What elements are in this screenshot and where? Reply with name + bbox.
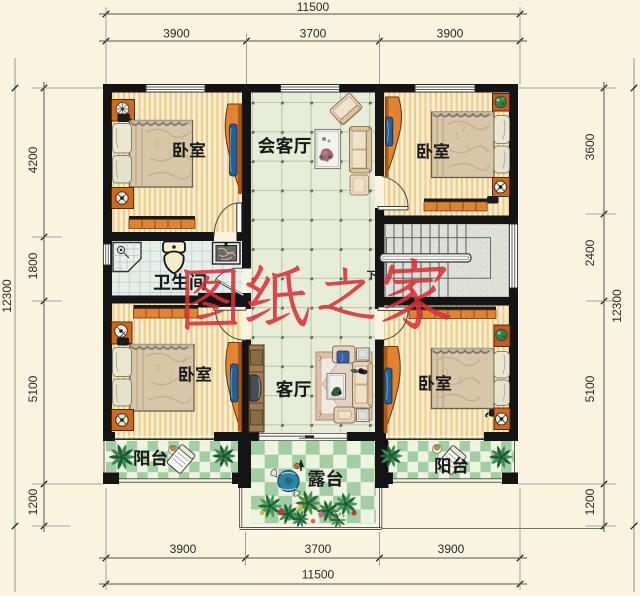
svg-text:2400: 2400 — [583, 239, 597, 266]
svg-text:1800: 1800 — [26, 252, 40, 279]
svg-text:3600: 3600 — [583, 133, 597, 160]
svg-text:3900: 3900 — [438, 542, 465, 556]
svg-text:3900: 3900 — [163, 27, 190, 41]
svg-text:5100: 5100 — [26, 375, 40, 402]
svg-text:12300: 12300 — [0, 279, 14, 313]
svg-text:11500: 11500 — [302, 568, 335, 582]
svg-text:1200: 1200 — [26, 488, 40, 515]
svg-text:5100: 5100 — [583, 375, 597, 402]
svg-text:3900: 3900 — [170, 542, 197, 556]
svg-text:4200: 4200 — [26, 146, 40, 173]
svg-text:3900: 3900 — [437, 27, 464, 41]
svg-text:3700: 3700 — [305, 542, 332, 556]
svg-text:3700: 3700 — [300, 27, 327, 41]
svg-text:11500: 11500 — [297, 0, 330, 14]
svg-text:1200: 1200 — [583, 488, 597, 515]
svg-text:12300: 12300 — [610, 289, 624, 323]
